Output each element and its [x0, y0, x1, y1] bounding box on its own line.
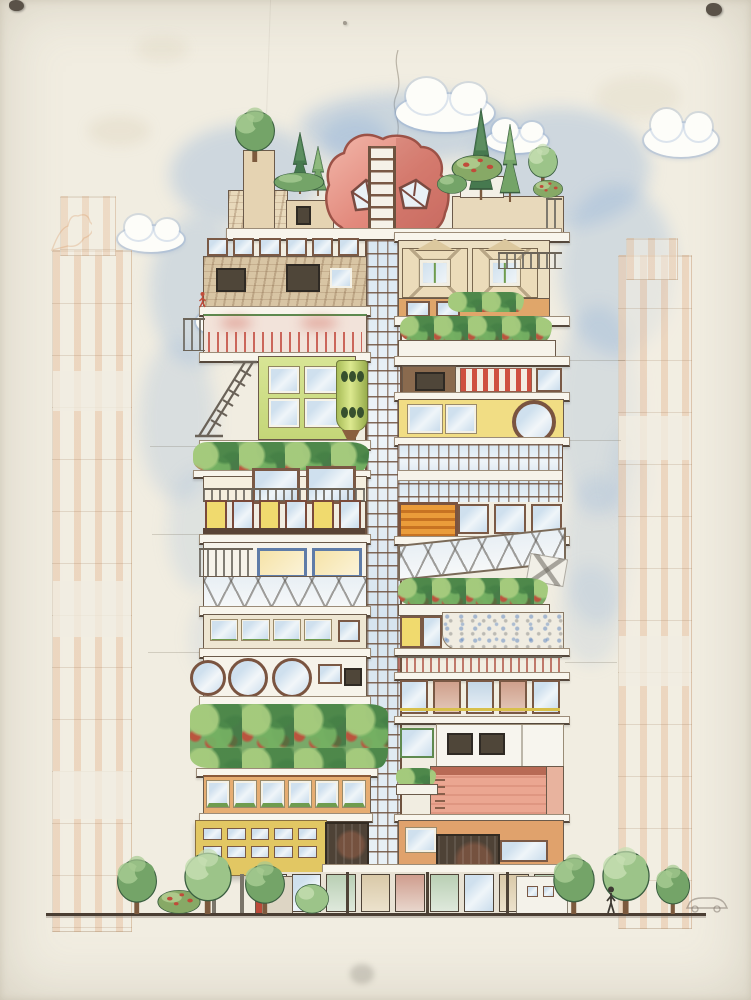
brown-balcony [402, 366, 456, 394]
street-shadow-line [46, 916, 706, 918]
window [400, 616, 422, 648]
window [479, 733, 505, 755]
pedestrian [606, 886, 616, 914]
artwork-canvas [0, 0, 751, 1000]
window [330, 268, 352, 288]
truss-balcony-band [203, 576, 367, 608]
flower-balcony [400, 316, 552, 342]
flower-railing [398, 578, 548, 606]
window-cell [339, 500, 361, 530]
window-cell [494, 504, 525, 534]
roof-chimney [243, 150, 275, 234]
window-cell [234, 781, 256, 807]
porthole-window [272, 658, 312, 698]
bush-tree [294, 874, 330, 914]
window-row [211, 620, 331, 640]
rock-ladder-shaft [368, 146, 396, 240]
bush-tree [436, 168, 468, 194]
porthole-window [228, 658, 268, 698]
white-cabinet-module [436, 724, 564, 768]
window [406, 828, 436, 852]
window [269, 367, 299, 393]
window-cell [211, 620, 237, 640]
window-cell [227, 828, 246, 840]
window-cell [361, 874, 391, 912]
column [346, 872, 349, 914]
window-cell [207, 781, 229, 807]
window-cell [259, 500, 281, 530]
car-sketch [684, 896, 728, 913]
bush-tree [532, 174, 564, 198]
balcony-railing [199, 548, 253, 577]
window-cell [286, 238, 307, 256]
picture-window [312, 548, 362, 578]
spandrel-band [398, 470, 562, 481]
window [536, 368, 562, 392]
porthole-window [190, 660, 226, 696]
green-silo [336, 360, 368, 432]
window-cell [430, 874, 460, 912]
panel-joint [521, 725, 523, 767]
bay-window-band [205, 500, 361, 530]
window [400, 728, 434, 758]
red-smudge [220, 318, 252, 328]
window-cell [233, 238, 254, 256]
window-cell [464, 874, 494, 912]
clerestory-row [207, 238, 359, 256]
window [446, 405, 476, 433]
gable-window [420, 260, 450, 286]
window-row [207, 781, 365, 807]
window-cell [274, 620, 300, 640]
window-cell [338, 238, 359, 256]
window-cell [274, 828, 293, 840]
planter-box [396, 784, 438, 795]
striped-awning [460, 368, 532, 392]
gable-house [402, 248, 468, 298]
window-cell [343, 781, 365, 807]
window-cell [395, 874, 425, 912]
roof-opening [296, 206, 311, 225]
salmon-garage-module [430, 766, 548, 818]
window [318, 664, 342, 684]
exterior-stair [193, 356, 259, 442]
window-cell [251, 828, 270, 840]
window-cell [261, 781, 283, 807]
window [408, 405, 442, 433]
red-smudge [300, 318, 338, 328]
window-cell [285, 500, 307, 530]
window [338, 620, 360, 642]
window [286, 264, 320, 292]
side-balcony [183, 318, 205, 351]
roof-garden [190, 704, 388, 768]
balcony-railing [498, 252, 562, 269]
window [216, 268, 246, 292]
yellow-line [400, 708, 560, 711]
window-cell [298, 828, 317, 840]
window-cell [203, 828, 222, 840]
window-cell [207, 238, 228, 256]
window [447, 733, 473, 755]
window-cell [298, 846, 317, 858]
bush-tree [272, 166, 326, 192]
kiosk-window [527, 886, 538, 897]
window-cell [205, 500, 227, 530]
window-cell [242, 620, 268, 640]
window-cell [232, 500, 254, 530]
garage-beam [431, 767, 547, 775]
strip-window-row [203, 828, 317, 840]
window-cell [259, 238, 280, 256]
railing-flowers [448, 292, 524, 312]
window [344, 668, 362, 686]
column [506, 872, 509, 914]
window-cell [458, 504, 489, 534]
window-cell [289, 781, 311, 807]
window [422, 616, 442, 648]
column [426, 872, 429, 914]
pink-pillar [546, 766, 564, 818]
round-tree [176, 840, 240, 914]
window-cell [305, 620, 331, 640]
window [406, 301, 430, 317]
window-cell [316, 781, 338, 807]
loggia-floor [203, 314, 367, 355]
climbing-figure [199, 292, 206, 308]
picture-window [257, 548, 307, 578]
window-cell [312, 238, 333, 256]
window-cell [312, 500, 334, 530]
speckled-concrete-panel [442, 612, 564, 650]
window-cell [326, 874, 356, 912]
round-tree [228, 100, 282, 162]
round-tree [594, 838, 658, 914]
round-tree [238, 854, 292, 914]
opening [415, 372, 445, 391]
red-balustrade [208, 332, 362, 352]
window [500, 840, 548, 862]
window [269, 399, 299, 427]
